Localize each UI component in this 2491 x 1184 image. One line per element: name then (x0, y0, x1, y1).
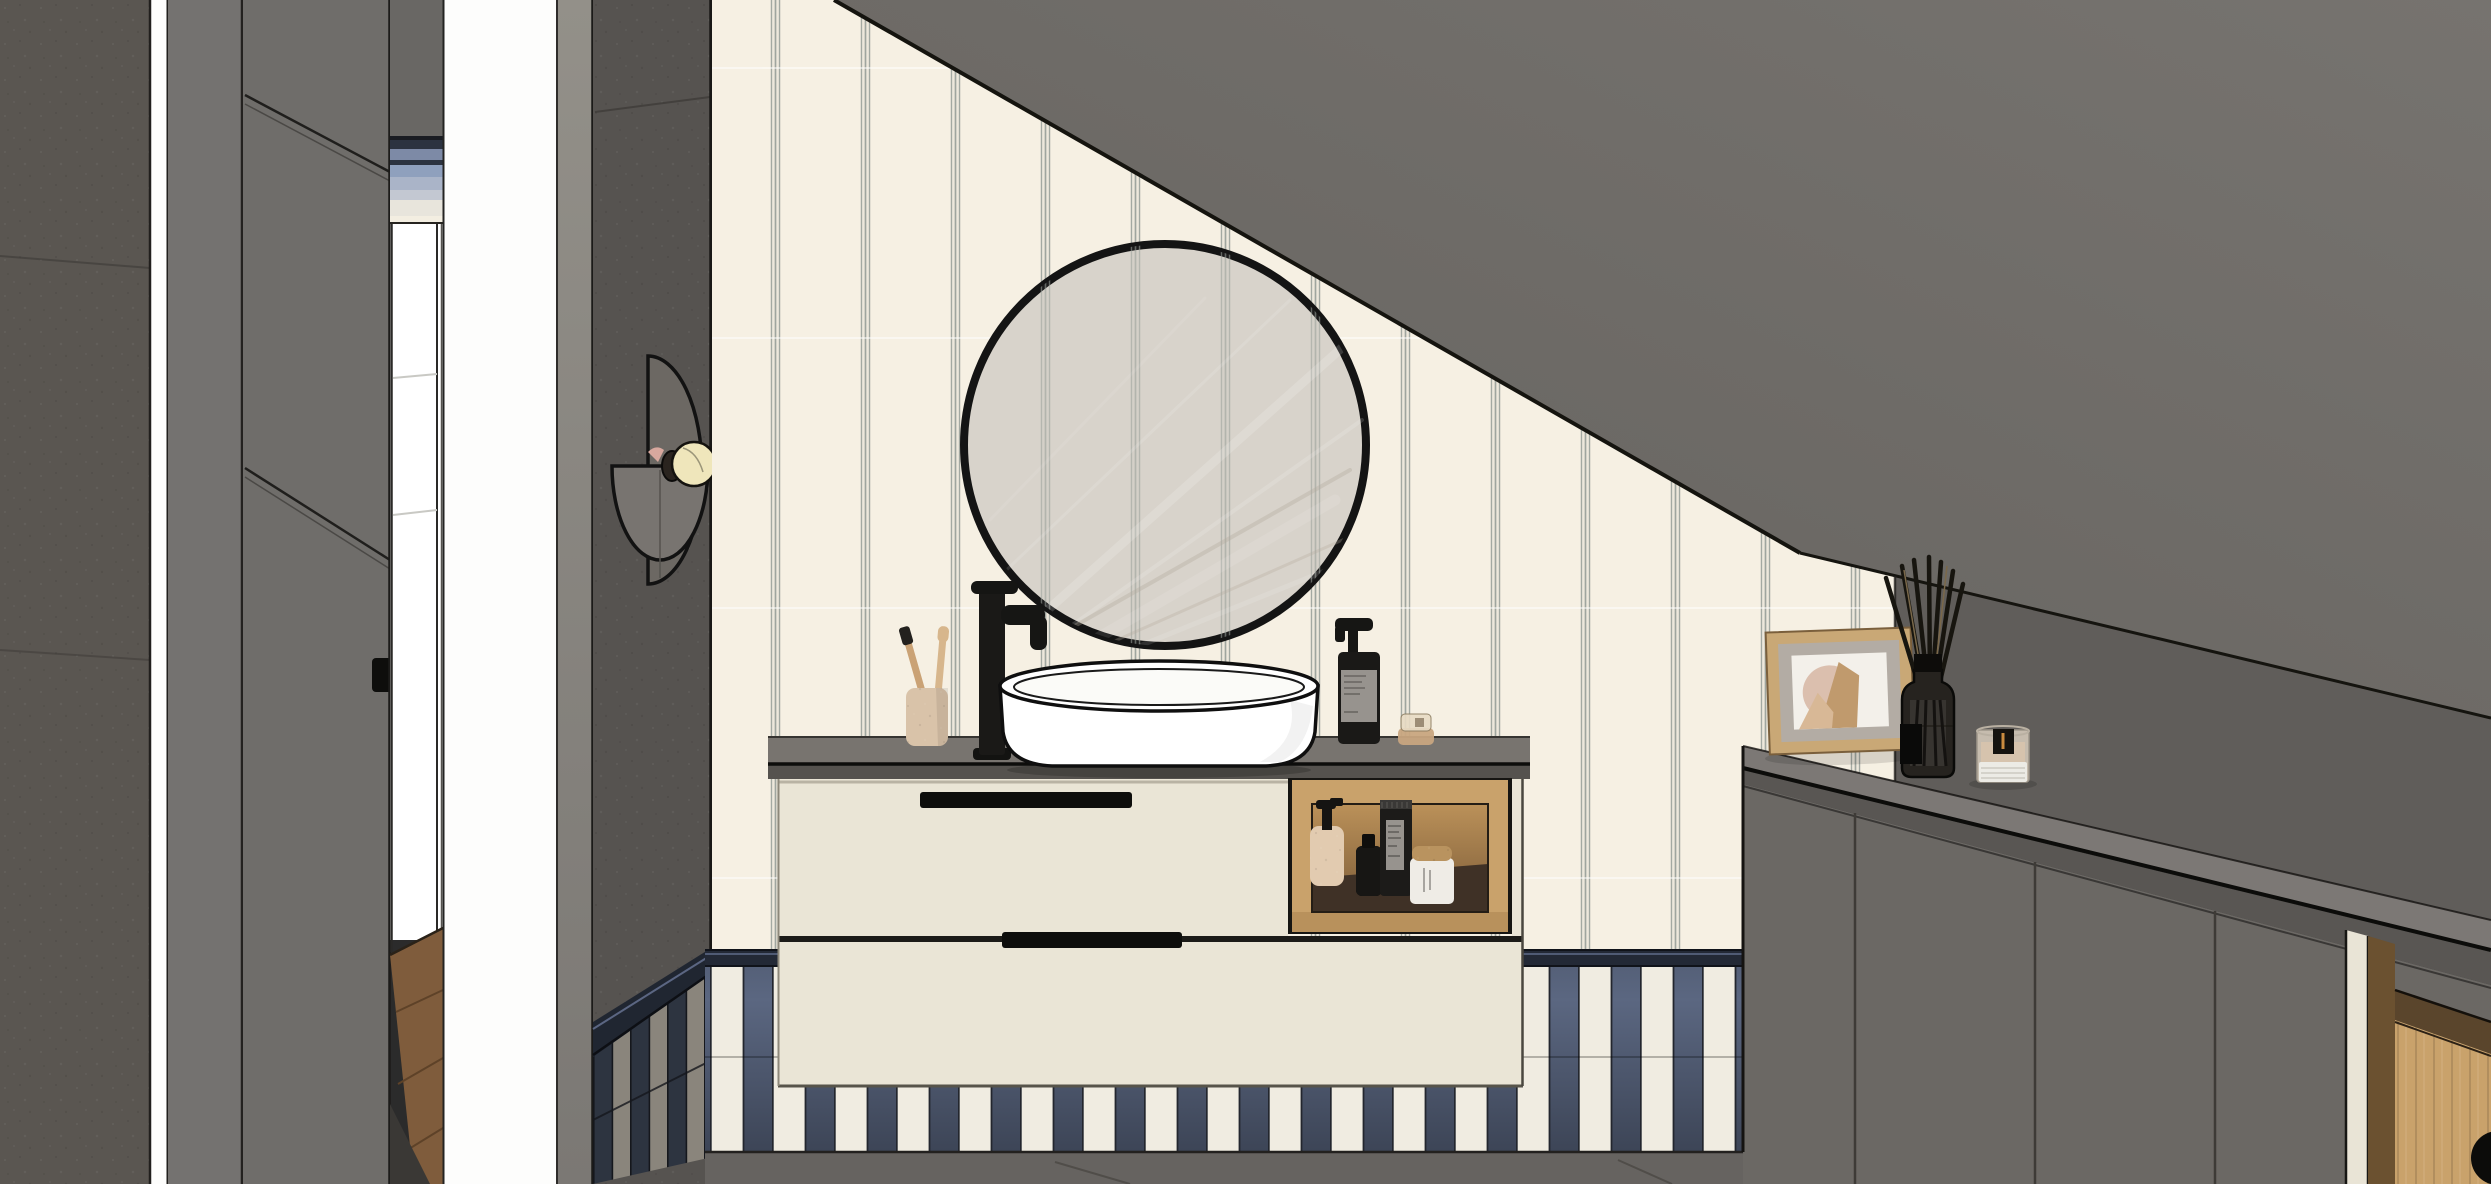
vessel-sink (1000, 661, 1318, 778)
lower-drawer-handle (1002, 932, 1182, 948)
cosmetic-tube (1380, 800, 1412, 896)
folded-towels (390, 136, 443, 223)
diffuser-label (1900, 724, 1922, 764)
left-section (0, 0, 716, 1184)
hallway (390, 0, 443, 1184)
niche-frame-bottom (1292, 912, 1508, 932)
vanity (768, 736, 1530, 1086)
niche-frame-left (1292, 780, 1312, 932)
wardrobe-panel (168, 0, 243, 1184)
white-door (390, 224, 443, 940)
bathroom-render-canvas (0, 0, 2491, 1184)
gray-door (243, 0, 390, 1184)
light-gap-left (150, 0, 168, 1184)
concrete-texture (0, 0, 150, 1184)
bay-wood-frame-vertical (2368, 936, 2395, 1184)
light-band (443, 0, 557, 1184)
cosmetic-jar (1398, 714, 1434, 745)
tube-label (1386, 820, 1404, 870)
cup-shade (936, 688, 948, 746)
vanity-open-niche (1288, 778, 1512, 934)
sconce-bulb (672, 442, 716, 486)
floor-tiles (705, 1152, 1746, 1184)
candle-base (1979, 762, 2027, 782)
upper-drawer-handle (920, 792, 1132, 808)
candle-glass (1969, 726, 2037, 790)
niche-frame-right (1488, 780, 1508, 932)
hall-wall-above (390, 0, 443, 137)
vanity-lower-drawer (778, 942, 1523, 1086)
soap-label (1341, 670, 1377, 722)
candle-jar-niche (1410, 846, 1454, 904)
diffuser-cap (1914, 654, 1942, 672)
bay-cream-trim (2346, 930, 2368, 1184)
wall-return-strip (557, 0, 593, 1184)
